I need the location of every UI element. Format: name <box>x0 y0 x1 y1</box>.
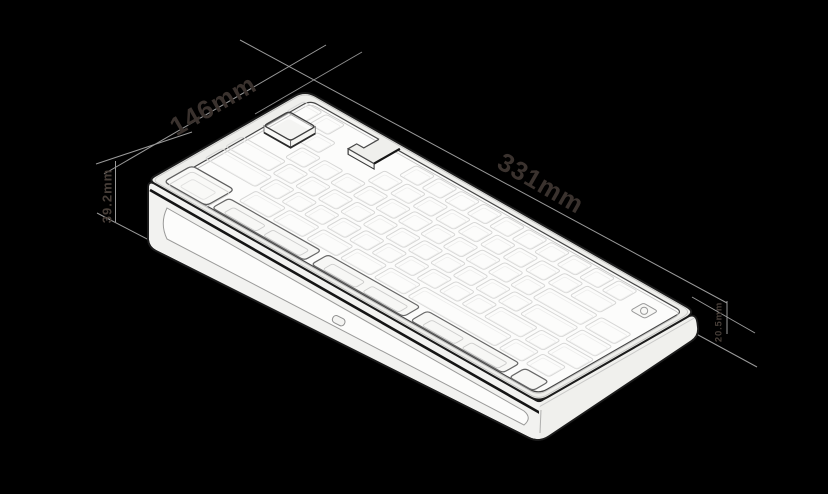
svg-text:39.2mm: 39.2mm <box>100 169 115 223</box>
svg-text:20.5mm: 20.5mm <box>714 302 725 342</box>
